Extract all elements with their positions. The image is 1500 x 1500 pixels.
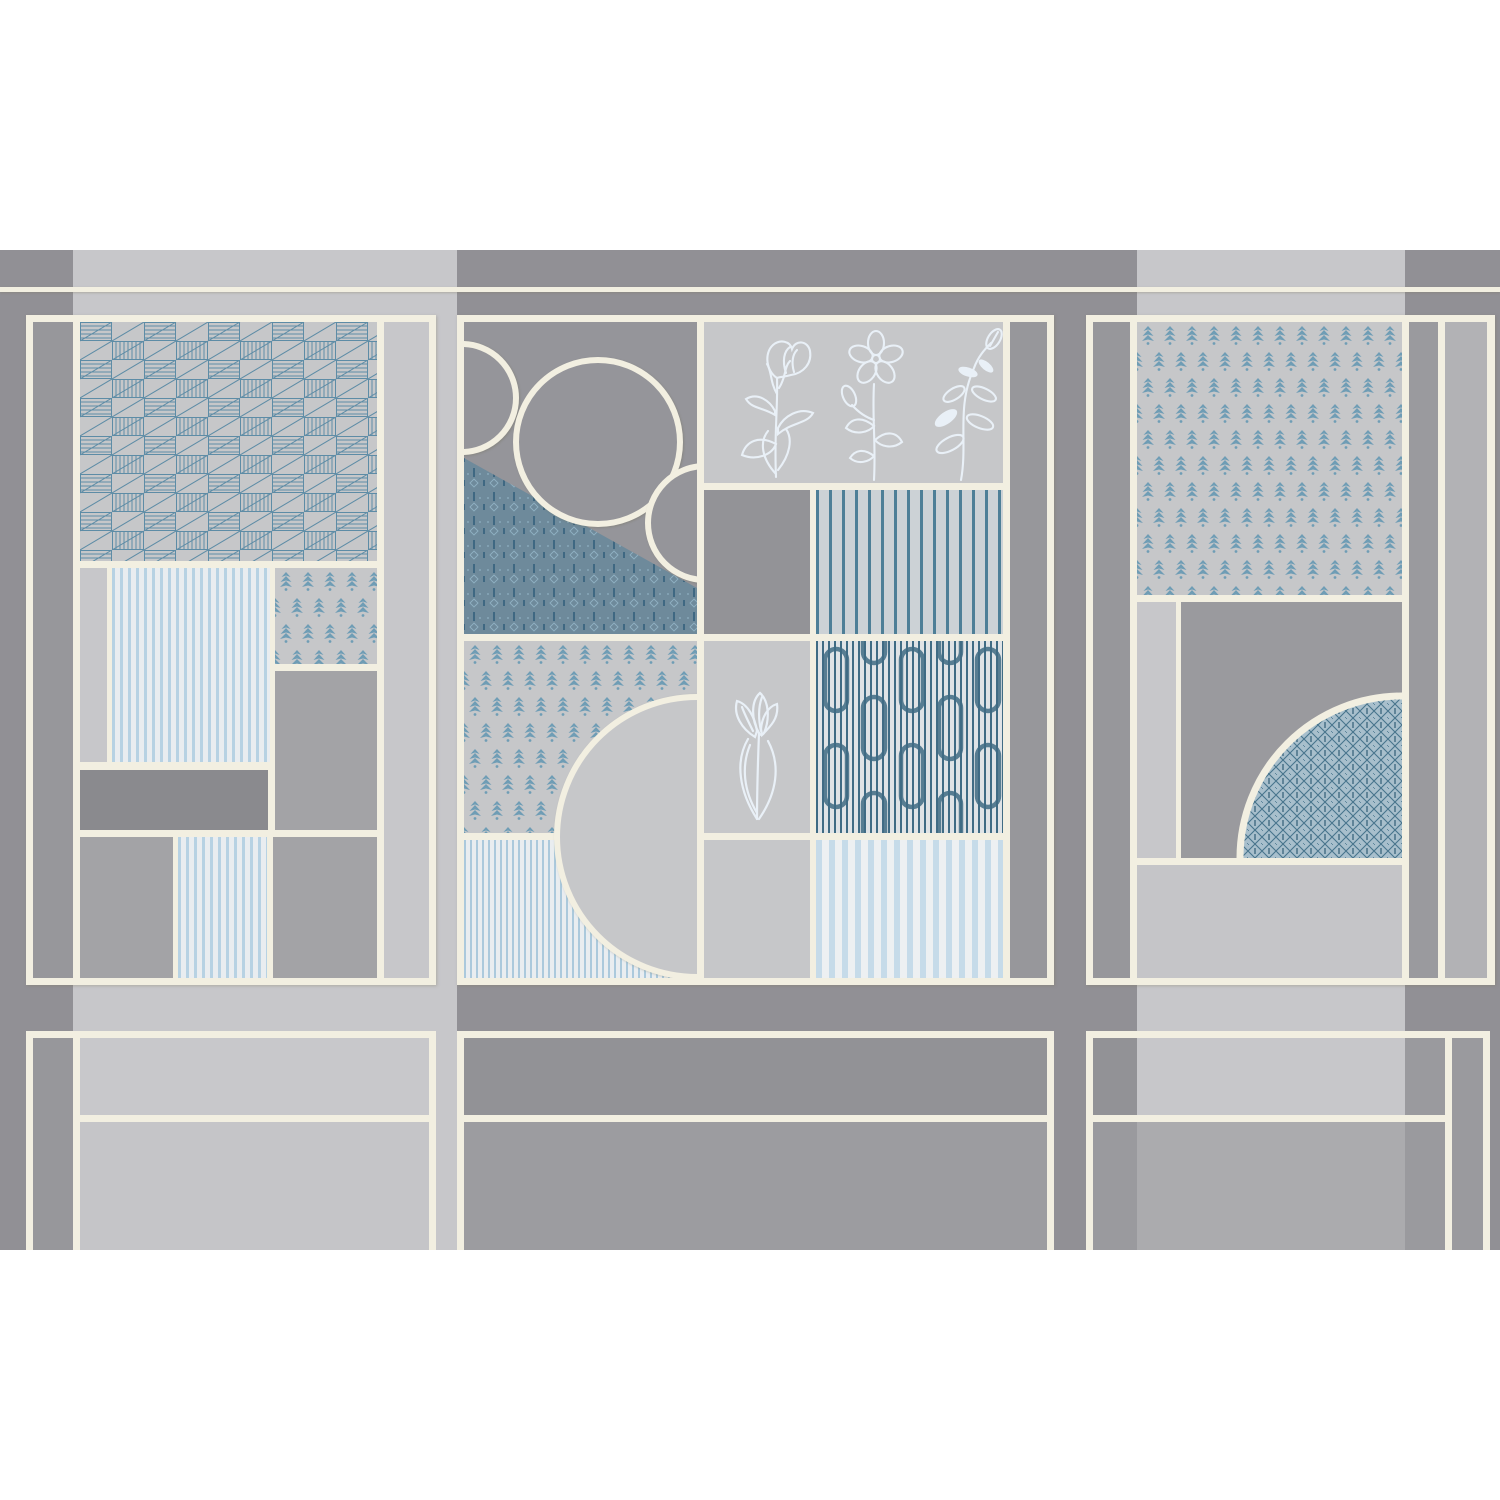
center-panel-side-column <box>1010 322 1047 978</box>
bottom-center-body <box>464 1122 1047 1250</box>
bottom-right-top-light <box>1137 1038 1405 1115</box>
tile-petit-floral-large <box>1137 322 1402 595</box>
tile-gray-bottom-left <box>80 837 173 978</box>
top-trim-line <box>0 287 1500 292</box>
bottom-right-panel <box>1086 1031 1490 1250</box>
right-panel-dark-column <box>1409 322 1438 978</box>
tile-plain-light <box>704 840 810 978</box>
tile-gray-bottom-right <box>273 837 377 978</box>
tile-teal-stripes <box>816 490 1003 634</box>
tile-gray-wide-dark <box>80 770 268 830</box>
bottom-center-panel <box>457 1031 1054 1250</box>
upper-right-panel <box>1086 315 1495 985</box>
tile-gray-tall <box>275 671 377 830</box>
tile-light-bottom <box>1137 865 1402 978</box>
bottom-left-side-column <box>33 1038 73 1250</box>
tile-pinstripe-bottom <box>178 837 267 978</box>
flower-stem-branch <box>932 326 1003 480</box>
mural-artwork <box>0 250 1500 1250</box>
botanical-lineart <box>704 322 1003 483</box>
crocus-lineart <box>704 641 810 833</box>
tile-light-narrow <box>1137 602 1176 858</box>
tile-botanical-lineart <box>704 322 1003 483</box>
bottom-left-body <box>80 1122 429 1250</box>
bottom-left-panel <box>26 1031 436 1250</box>
bottom-right-body-dark-left <box>1093 1122 1137 1250</box>
half-disc-clip <box>464 641 697 978</box>
tile-petit-floral-small <box>275 568 377 664</box>
bottom-right-body-dark-right <box>1405 1122 1445 1250</box>
right-panel-medium-column <box>1445 322 1487 978</box>
flower-stem-tulip <box>742 342 813 477</box>
bottom-right-top-dark-left <box>1093 1038 1137 1115</box>
flower-stem-daisy <box>839 331 905 480</box>
tile-wide-stripes <box>816 840 1003 978</box>
bottom-left-top-strip <box>80 1038 429 1115</box>
left-panel-light-column <box>384 322 429 978</box>
mural-canvas <box>0 0 1500 1500</box>
tile-crocus-lineart <box>704 641 810 833</box>
tile-small-light <box>80 568 107 762</box>
upper-center-panel <box>457 315 1054 985</box>
bottom-right-top-dark-right <box>1405 1038 1445 1115</box>
bottom-center-top-strip <box>464 1038 1047 1115</box>
tile-pinstripe-large <box>112 568 270 762</box>
left-panel-side-column <box>33 322 73 978</box>
tile-gray-center <box>704 490 810 634</box>
right-panel-side-column <box>1093 322 1130 978</box>
quarter-disc-lattice <box>1234 690 1402 858</box>
tile-checker-hatch <box>80 322 377 561</box>
bottom-right-side-column <box>1452 1038 1483 1250</box>
tile-quarter-disc <box>1181 602 1402 858</box>
upper-left-panel <box>26 315 436 985</box>
half-disc <box>554 694 697 978</box>
tile-circles-damask <box>464 322 697 634</box>
bottom-right-body-medium <box>1137 1122 1405 1250</box>
tile-circuit-pattern <box>816 641 1003 833</box>
